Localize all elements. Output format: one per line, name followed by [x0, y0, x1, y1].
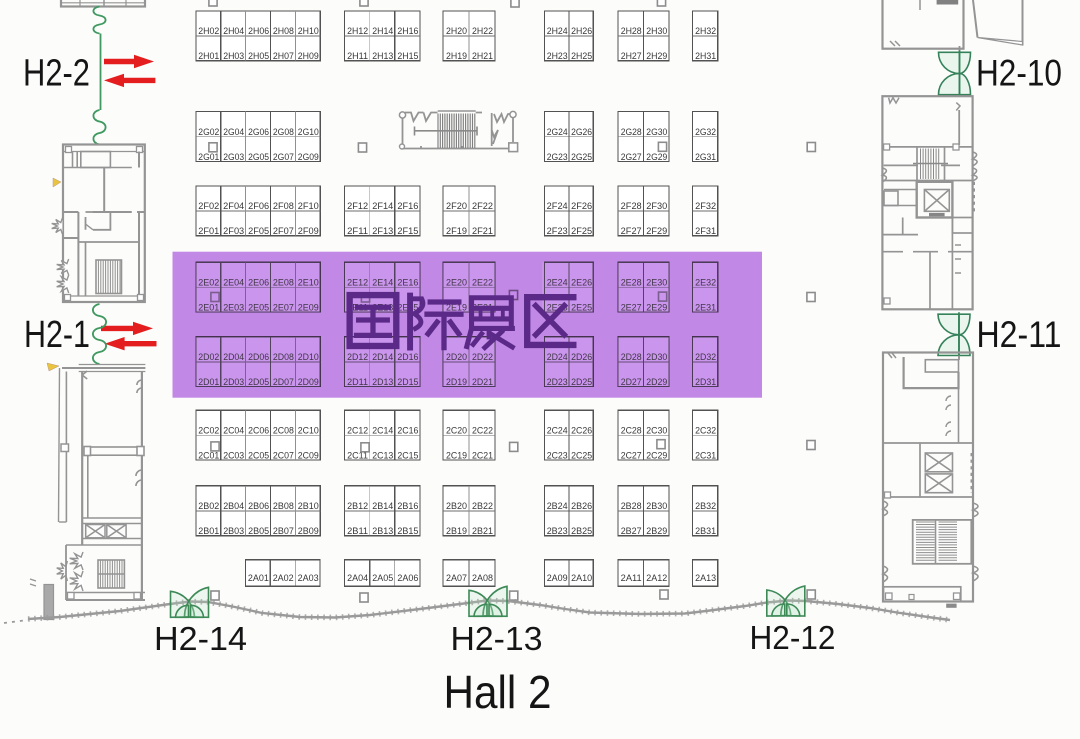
svg-text:2B24: 2B24 [547, 501, 568, 511]
svg-text:2H05: 2H05 [248, 51, 269, 61]
svg-text:2B22: 2B22 [472, 501, 493, 511]
svg-text:2F02: 2F02 [198, 201, 219, 211]
svg-text:2G28: 2G28 [621, 127, 642, 137]
svg-text:2B15: 2B15 [397, 526, 418, 536]
svg-text:2F25: 2F25 [571, 226, 592, 236]
svg-text:2B14: 2B14 [372, 501, 393, 511]
svg-text:2G04: 2G04 [223, 127, 244, 137]
svg-text:2H26: 2H26 [571, 26, 592, 36]
svg-text:2H25: 2H25 [571, 51, 592, 61]
svg-text:2H02: 2H02 [198, 26, 219, 36]
svg-text:2G30: 2G30 [646, 127, 667, 137]
svg-text:2H27: 2H27 [621, 51, 642, 61]
svg-text:2G01: 2G01 [198, 152, 219, 162]
svg-text:2B28: 2B28 [621, 501, 642, 511]
svg-text:2C25: 2C25 [571, 450, 592, 460]
svg-text:2H13: 2H13 [372, 51, 393, 61]
svg-text:2F26: 2F26 [571, 201, 592, 211]
svg-text:2B23: 2B23 [547, 526, 568, 536]
svg-text:2F01: 2F01 [198, 226, 219, 236]
svg-text:2A02: 2A02 [273, 573, 294, 583]
svg-text:2C16: 2C16 [397, 425, 418, 435]
svg-text:2C10: 2C10 [298, 425, 319, 435]
svg-text:2A10: 2A10 [571, 573, 592, 583]
svg-text:2C28: 2C28 [621, 425, 642, 435]
svg-text:2B09: 2B09 [298, 526, 319, 536]
svg-text:2B03: 2B03 [223, 526, 244, 536]
svg-text:2G23: 2G23 [547, 152, 568, 162]
svg-text:H2-13: H2-13 [451, 620, 543, 657]
svg-text:2F09: 2F09 [298, 226, 319, 236]
svg-text:2G24: 2G24 [547, 127, 568, 137]
svg-text:2F27: 2F27 [621, 226, 642, 236]
svg-text:2B21: 2B21 [472, 526, 493, 536]
svg-text:2G08: 2G08 [273, 127, 294, 137]
svg-text:2C15: 2C15 [397, 450, 418, 460]
svg-text:2A11: 2A11 [621, 573, 642, 583]
svg-text:2H20: 2H20 [446, 26, 467, 36]
svg-text:2G07: 2G07 [273, 152, 294, 162]
svg-text:2B30: 2B30 [646, 501, 667, 511]
svg-text:2G32: 2G32 [695, 127, 716, 137]
svg-text:2C29: 2C29 [646, 450, 667, 460]
svg-text:2C07: 2C07 [273, 450, 294, 460]
svg-text:H2-10: H2-10 [976, 53, 1062, 94]
svg-text:2C01: 2C01 [198, 450, 219, 460]
svg-text:2C31: 2C31 [695, 450, 716, 460]
svg-text:2C12: 2C12 [347, 425, 368, 435]
svg-text:2F24: 2F24 [547, 201, 568, 211]
svg-text:2F15: 2F15 [397, 226, 418, 236]
svg-text:2A05: 2A05 [372, 573, 393, 583]
svg-text:2A06: 2A06 [397, 573, 418, 583]
svg-text:2H19: 2H19 [446, 51, 467, 61]
svg-text:2G31: 2G31 [695, 152, 716, 162]
svg-text:2C27: 2C27 [621, 450, 642, 460]
svg-text:2C26: 2C26 [571, 425, 592, 435]
svg-text:H2-12: H2-12 [750, 619, 836, 656]
svg-text:2G02: 2G02 [198, 127, 219, 137]
svg-text:2B11: 2B11 [347, 526, 368, 536]
svg-text:2H28: 2H28 [621, 26, 642, 36]
svg-text:2B16: 2B16 [397, 501, 418, 511]
svg-text:2H29: 2H29 [646, 51, 667, 61]
svg-text:2A04: 2A04 [347, 573, 368, 583]
svg-text:2B07: 2B07 [273, 526, 294, 536]
svg-text:2H21: 2H21 [472, 51, 493, 61]
svg-text:2A09: 2A09 [547, 573, 568, 583]
svg-text:2H15: 2H15 [397, 51, 418, 61]
svg-text:2H03: 2H03 [223, 51, 244, 61]
svg-text:2C08: 2C08 [273, 425, 294, 435]
svg-text:2C20: 2C20 [446, 425, 467, 435]
svg-text:2F06: 2F06 [248, 201, 269, 211]
svg-text:2G29: 2G29 [646, 152, 667, 162]
svg-text:2F16: 2F16 [397, 201, 418, 211]
svg-text:2A12: 2A12 [646, 573, 667, 583]
svg-text:2G27: 2G27 [621, 152, 642, 162]
svg-text:2H22: 2H22 [472, 26, 493, 36]
svg-text:2B19: 2B19 [446, 526, 467, 536]
svg-text:2A13: 2A13 [695, 573, 716, 583]
svg-text:2C21: 2C21 [472, 450, 493, 460]
svg-text:2H04: 2H04 [223, 26, 244, 36]
svg-text:2A07: 2A07 [446, 573, 467, 583]
svg-text:2H24: 2H24 [547, 26, 568, 36]
svg-text:2A08: 2A08 [472, 573, 493, 583]
svg-text:2C23: 2C23 [547, 450, 568, 460]
svg-text:2C04: 2C04 [223, 425, 244, 435]
svg-text:2A01: 2A01 [248, 573, 269, 583]
svg-text:2H08: 2H08 [273, 26, 294, 36]
svg-text:2F13: 2F13 [372, 226, 393, 236]
svg-text:2F21: 2F21 [472, 226, 493, 236]
svg-text:2C19: 2C19 [446, 450, 467, 460]
svg-text:2F28: 2F28 [621, 201, 642, 211]
svg-text:2H10: 2H10 [298, 26, 319, 36]
svg-text:2B13: 2B13 [372, 526, 393, 536]
svg-text:2F11: 2F11 [347, 226, 368, 236]
svg-text:2B10: 2B10 [298, 501, 319, 511]
svg-text:2B20: 2B20 [446, 501, 467, 511]
svg-text:2B04: 2B04 [223, 501, 244, 511]
svg-text:2C06: 2C06 [248, 425, 269, 435]
svg-text:2B05: 2B05 [248, 526, 269, 536]
svg-text:2B08: 2B08 [273, 501, 294, 511]
svg-text:2H12: 2H12 [347, 26, 368, 36]
svg-text:2F19: 2F19 [446, 226, 467, 236]
svg-text:2C03: 2C03 [223, 450, 244, 460]
svg-text:2F29: 2F29 [646, 226, 667, 236]
svg-text:2F03: 2F03 [223, 226, 244, 236]
svg-text:2B26: 2B26 [571, 501, 592, 511]
svg-text:2C02: 2C02 [198, 425, 219, 435]
svg-text:2B27: 2B27 [621, 526, 642, 536]
svg-text:2G26: 2G26 [571, 127, 592, 137]
svg-text:2F30: 2F30 [646, 201, 667, 211]
svg-text:2H07: 2H07 [273, 51, 294, 61]
svg-text:2B06: 2B06 [248, 501, 269, 511]
svg-text:2F23: 2F23 [547, 226, 568, 236]
svg-text:2H16: 2H16 [397, 26, 418, 36]
svg-text:2F04: 2F04 [223, 201, 244, 211]
svg-text:H2-1: H2-1 [24, 314, 90, 356]
svg-text:2C05: 2C05 [248, 450, 269, 460]
svg-text:2C24: 2C24 [547, 425, 568, 435]
svg-text:2B12: 2B12 [347, 501, 368, 511]
svg-text:2B25: 2B25 [571, 526, 592, 536]
svg-text:2B29: 2B29 [646, 526, 667, 536]
svg-text:2C22: 2C22 [472, 425, 493, 435]
svg-text:2A03: 2A03 [298, 573, 319, 583]
svg-text:2H30: 2H30 [646, 26, 667, 36]
svg-text:2G03: 2G03 [223, 152, 244, 162]
svg-text:2H14: 2H14 [372, 26, 393, 36]
svg-text:2F32: 2F32 [695, 201, 716, 211]
svg-text:2B31: 2B31 [695, 526, 716, 536]
svg-text:2C09: 2C09 [298, 450, 319, 460]
svg-text:H2-11: H2-11 [977, 314, 1062, 355]
svg-text:2C13: 2C13 [372, 450, 393, 460]
svg-text:2B32: 2B32 [695, 501, 716, 511]
svg-text:2F07: 2F07 [273, 226, 294, 236]
svg-text:2F05: 2F05 [248, 226, 269, 236]
svg-text:2B01: 2B01 [198, 526, 219, 536]
svg-text:2F08: 2F08 [273, 201, 294, 211]
svg-text:2G05: 2G05 [248, 152, 269, 162]
svg-text:2H06: 2H06 [248, 26, 269, 36]
svg-text:2G25: 2G25 [571, 152, 592, 162]
svg-text:2C14: 2C14 [372, 425, 393, 435]
svg-text:2G06: 2G06 [248, 127, 269, 137]
svg-text:2F12: 2F12 [347, 201, 368, 211]
svg-text:2H09: 2H09 [298, 51, 319, 61]
svg-text:2F22: 2F22 [472, 201, 493, 211]
svg-text:2F14: 2F14 [372, 201, 393, 211]
svg-text:2H11: 2H11 [347, 51, 368, 61]
svg-text:2C30: 2C30 [646, 425, 667, 435]
svg-text:Hall 2: Hall 2 [444, 666, 552, 718]
svg-text:2F10: 2F10 [298, 201, 319, 211]
svg-text:H2-14: H2-14 [154, 620, 247, 657]
svg-text:2H31: 2H31 [695, 51, 716, 61]
svg-text:2H23: 2H23 [547, 51, 568, 61]
svg-text:2G10: 2G10 [298, 127, 319, 137]
svg-text:2F31: 2F31 [695, 226, 716, 236]
svg-text:2C32: 2C32 [695, 425, 716, 435]
svg-text:2B02: 2B02 [198, 501, 219, 511]
svg-text:2H32: 2H32 [695, 26, 716, 36]
svg-text:2H01: 2H01 [198, 51, 219, 61]
svg-text:2G09: 2G09 [298, 152, 319, 162]
svg-text:2F20: 2F20 [446, 201, 467, 211]
svg-text:H2-2: H2-2 [23, 53, 90, 95]
